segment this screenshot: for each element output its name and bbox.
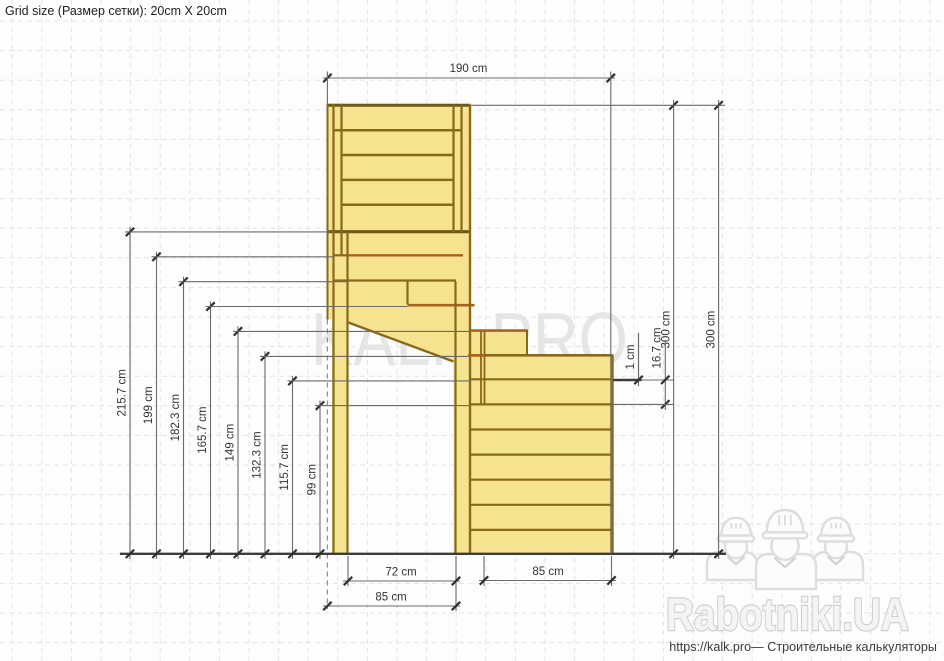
svg-text:https://kalk.pro— Строительные: https://kalk.pro— Строительные калькулят…	[669, 640, 937, 654]
svg-text:99 cm: 99 cm	[307, 464, 319, 495]
svg-text:85 cm: 85 cm	[532, 566, 563, 578]
svg-text:215.7 cm: 215.7 cm	[117, 369, 129, 416]
svg-text:85 cm: 85 cm	[375, 592, 406, 604]
svg-text:72 cm: 72 cm	[385, 567, 416, 579]
svg-text:165.7 cm: 165.7 cm	[197, 406, 209, 453]
svg-text:182.3 cm: 182.3 cm	[170, 394, 182, 441]
svg-text:132.3 cm: 132.3 cm	[252, 431, 264, 478]
svg-text:190 cm: 190 cm	[450, 63, 488, 75]
svg-text:Grid size (Размер сетки): 20cm: Grid size (Размер сетки): 20cm X 20cm	[5, 4, 227, 18]
svg-text:Rabotniki.UA: Rabotniki.UA	[666, 589, 909, 639]
svg-text:149 cm: 149 cm	[225, 424, 237, 462]
svg-text:300 cm: 300 cm	[705, 311, 717, 349]
svg-text:16.7 cm: 16.7 cm	[652, 328, 664, 369]
svg-text:1 cm: 1 cm	[625, 345, 637, 370]
svg-text:115.7 cm: 115.7 cm	[279, 444, 291, 490]
svg-text:199 cm: 199 cm	[143, 386, 155, 424]
